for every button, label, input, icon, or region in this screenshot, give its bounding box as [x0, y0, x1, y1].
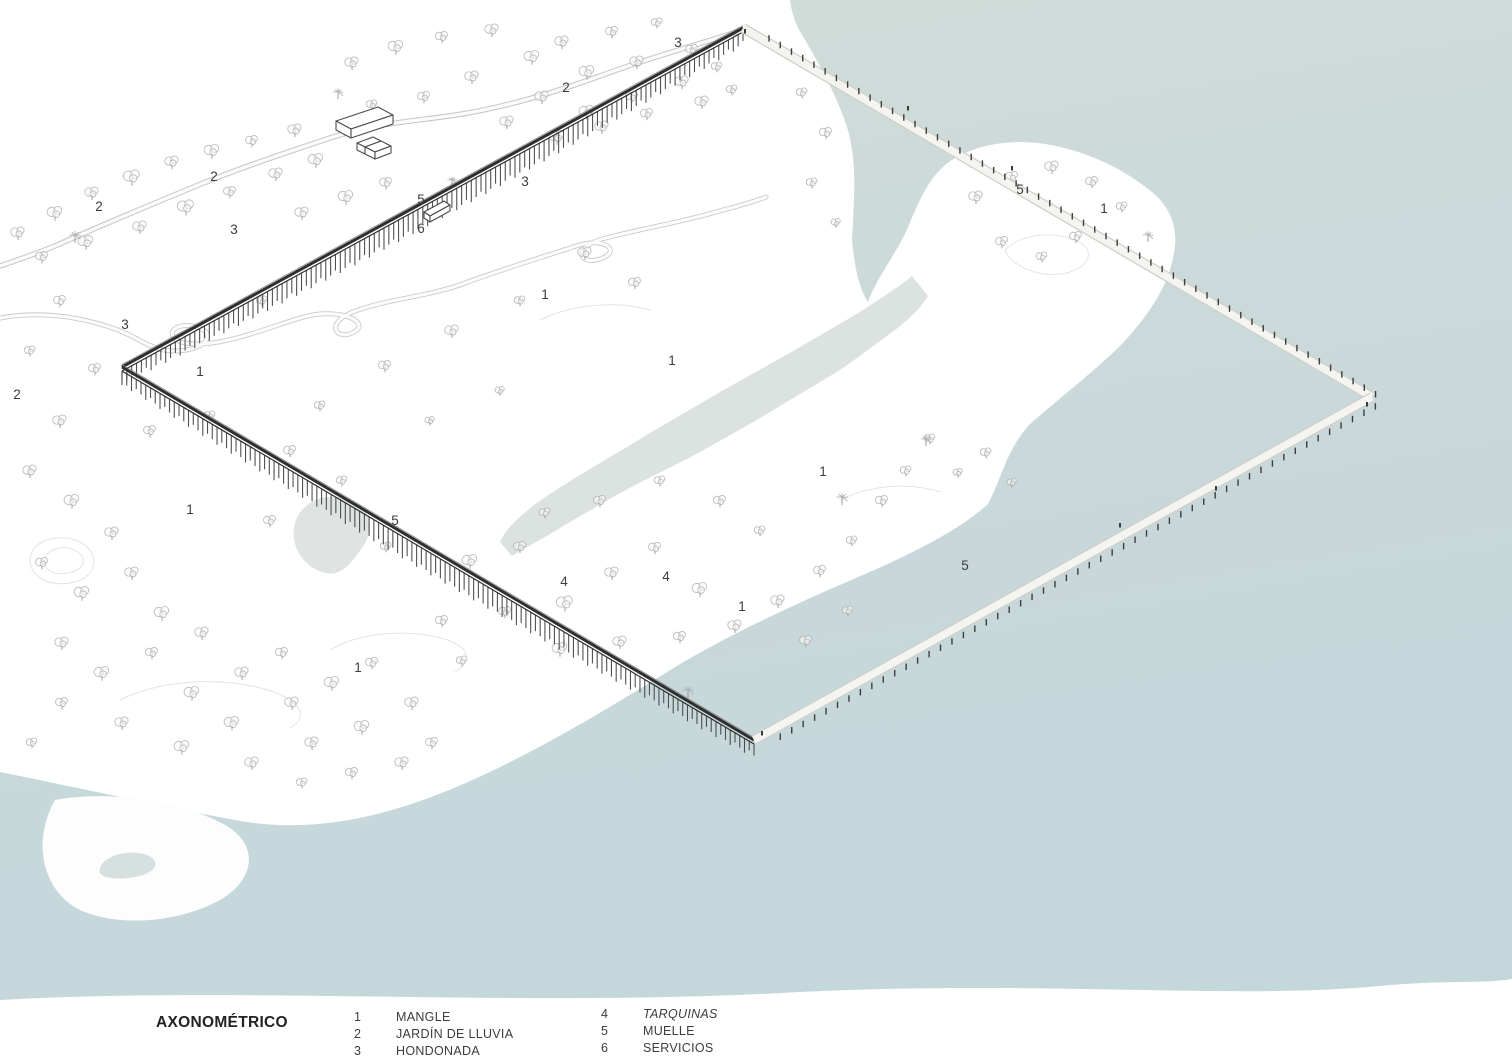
- keynote-label: 5: [961, 558, 969, 573]
- tree-icon: [288, 124, 301, 137]
- tree-icon: [23, 465, 36, 478]
- tree-icon: [405, 697, 418, 710]
- tree-icon: [346, 767, 358, 779]
- tree-icon: [345, 57, 358, 70]
- tree-icon: [711, 62, 722, 72]
- tree-icon: [285, 697, 298, 710]
- tree-icon: [436, 615, 448, 627]
- tree-icon: [125, 567, 138, 580]
- tree-icon: [674, 631, 686, 643]
- tree-icon: [94, 666, 109, 680]
- tree-icon: [796, 88, 807, 98]
- tree-icon: [133, 221, 146, 234]
- keynote-label: 1: [186, 502, 194, 517]
- tree-icon: [996, 236, 1008, 248]
- person-figure: [1366, 402, 1368, 407]
- tree-icon: [980, 448, 991, 458]
- estuary-channel: [500, 276, 928, 556]
- tree-icon: [1086, 176, 1098, 188]
- tree-icon: [436, 31, 448, 43]
- contour: [840, 486, 940, 500]
- tree-icon: [264, 515, 276, 527]
- tree-icon: [654, 476, 665, 486]
- person-figure: [1215, 486, 1217, 491]
- tree-icon: [36, 251, 48, 263]
- tree-icon: [1036, 252, 1047, 262]
- tree-icon: [649, 542, 661, 554]
- tree-icon: [728, 620, 741, 633]
- contour: [540, 305, 650, 320]
- tree-icon: [380, 177, 392, 189]
- tree-icon: [395, 757, 408, 770]
- tree-icon: [184, 686, 199, 700]
- keynote-label: 1: [668, 353, 676, 368]
- keynote-label: 1: [1100, 201, 1108, 216]
- tree-icon: [11, 227, 24, 240]
- tree-icon: [314, 401, 325, 411]
- tree-icon: [900, 466, 911, 476]
- keynote-label: 4: [560, 574, 568, 589]
- tree-icon: [495, 386, 504, 395]
- tree-icon: [695, 96, 708, 109]
- tree-icon: [123, 170, 139, 186]
- tree-icon: [876, 495, 888, 507]
- keynote-label: 2: [13, 387, 21, 402]
- tree-icon: [204, 144, 219, 158]
- keynote-label: 2: [210, 169, 218, 184]
- tree-icon: [64, 494, 79, 508]
- keynote-label: 3: [674, 35, 682, 50]
- keynote-label: 4: [662, 569, 670, 584]
- tree-icon: [74, 586, 89, 600]
- tree-icon: [105, 527, 118, 540]
- tree-icon: [456, 656, 467, 666]
- tree-icon: [115, 717, 128, 730]
- tree-icon: [26, 738, 37, 748]
- keynote-label: 5: [391, 513, 399, 528]
- tree-icon: [535, 91, 548, 104]
- tree-icon: [308, 153, 323, 167]
- keynote-label: 1: [541, 287, 549, 302]
- tree-icon: [426, 737, 438, 749]
- keynote-label: 1: [819, 464, 827, 479]
- keynote-label: 3: [230, 222, 238, 237]
- tree-icon: [324, 676, 339, 690]
- tree-icon: [499, 606, 511, 618]
- tree-icon: [269, 168, 282, 181]
- tree-icon: [55, 637, 68, 650]
- tree-icon: [754, 526, 765, 536]
- tree-icon: [1070, 231, 1082, 243]
- tree-icon: [1116, 202, 1127, 212]
- palm-icon: [1143, 231, 1153, 242]
- tree-icon: [846, 536, 857, 546]
- tree-icon: [814, 565, 826, 577]
- tree-icon: [726, 85, 737, 95]
- tree-icon: [379, 360, 391, 372]
- tree-icon: [338, 190, 353, 204]
- tree-icon: [524, 50, 539, 64]
- tree-icon: [606, 26, 618, 38]
- tree-icon: [245, 757, 258, 770]
- person-figure: [1119, 523, 1121, 528]
- tree-icon: [296, 778, 307, 788]
- tree-icon: [295, 207, 308, 220]
- tree-icon: [276, 647, 288, 659]
- tree-icon: [771, 595, 784, 608]
- tree-icon: [154, 606, 169, 620]
- palm-icon: [333, 88, 343, 99]
- tree-icon: [336, 476, 347, 486]
- tree-icon: [465, 71, 478, 84]
- person-figure: [907, 106, 909, 111]
- keynote-label: 3: [121, 317, 129, 332]
- keynote-label: 6: [417, 221, 425, 236]
- keynote-label: 1: [354, 660, 362, 675]
- tree-icon: [388, 40, 403, 54]
- tree-icon: [969, 191, 982, 204]
- tree-icon: [595, 121, 608, 134]
- axonometric-site-plan: 32223563513121111554411 AXONOMÉTRICO 1MA…: [0, 0, 1512, 1064]
- tree-icon: [224, 716, 239, 730]
- tree-icon: [692, 582, 707, 596]
- tree-icon: [284, 445, 296, 457]
- tree-icon: [613, 636, 626, 649]
- tree-icon: [47, 206, 62, 220]
- tree-icon: [380, 542, 391, 552]
- tree-icon: [555, 36, 568, 49]
- tree-icon: [556, 596, 572, 612]
- tree-icon: [54, 295, 66, 307]
- tree-icon: [246, 135, 258, 147]
- tree-icon: [820, 127, 832, 139]
- contour: [330, 633, 466, 672]
- tree-icon: [195, 627, 208, 640]
- tree-icon: [500, 116, 513, 129]
- tree-icon: [651, 18, 662, 28]
- tree-icon: [89, 363, 101, 375]
- tree-icon: [418, 91, 430, 103]
- tree-icon: [78, 235, 93, 249]
- tree-icon: [224, 186, 236, 198]
- keynote-label: 1: [738, 599, 746, 614]
- keynote-label: 2: [95, 199, 103, 214]
- tree-icon: [953, 468, 962, 477]
- tree-icon: [445, 325, 458, 338]
- palm-icon: [836, 493, 847, 505]
- tree-icon: [514, 296, 525, 306]
- tree-icon: [425, 416, 434, 425]
- tree-icon: [146, 647, 158, 659]
- tree-icon: [1045, 161, 1058, 174]
- tree-icon: [165, 156, 178, 169]
- tree-icon: [305, 737, 318, 750]
- contour: [44, 548, 83, 574]
- tree-icon: [641, 108, 653, 120]
- boardwalk-trestle: [122, 26, 754, 756]
- keynote-label: 5: [1016, 182, 1024, 197]
- person-figure: [744, 29, 746, 34]
- tree-icon: [53, 415, 66, 428]
- tree-icon: [144, 425, 156, 437]
- tree-icon: [177, 200, 193, 216]
- tree-icon: [366, 657, 378, 669]
- contour: [120, 682, 300, 728]
- tree-icon: [174, 740, 189, 754]
- tree-icon: [485, 24, 498, 37]
- tree-icon: [235, 667, 248, 680]
- keynote-label: 3: [521, 174, 529, 189]
- tree-icon: [354, 720, 369, 734]
- tree-icon: [806, 178, 817, 188]
- keynote-label: 2: [562, 80, 570, 95]
- tree-icon: [24, 346, 35, 356]
- person-figure: [1011, 166, 1013, 171]
- tree-icon: [629, 277, 641, 289]
- keynote-label: 5: [417, 192, 425, 207]
- tree-icon: [831, 218, 840, 227]
- tree-icon: [56, 697, 68, 709]
- person-figure: [761, 731, 763, 736]
- tree-icon: [714, 495, 726, 507]
- water-and-terrain: [0, 0, 1512, 1002]
- keynote-label: 1: [196, 364, 204, 379]
- tree-icon: [675, 76, 688, 89]
- site-drawing: 32223563513121111554411: [0, 0, 1512, 1064]
- tree-icon: [605, 567, 618, 580]
